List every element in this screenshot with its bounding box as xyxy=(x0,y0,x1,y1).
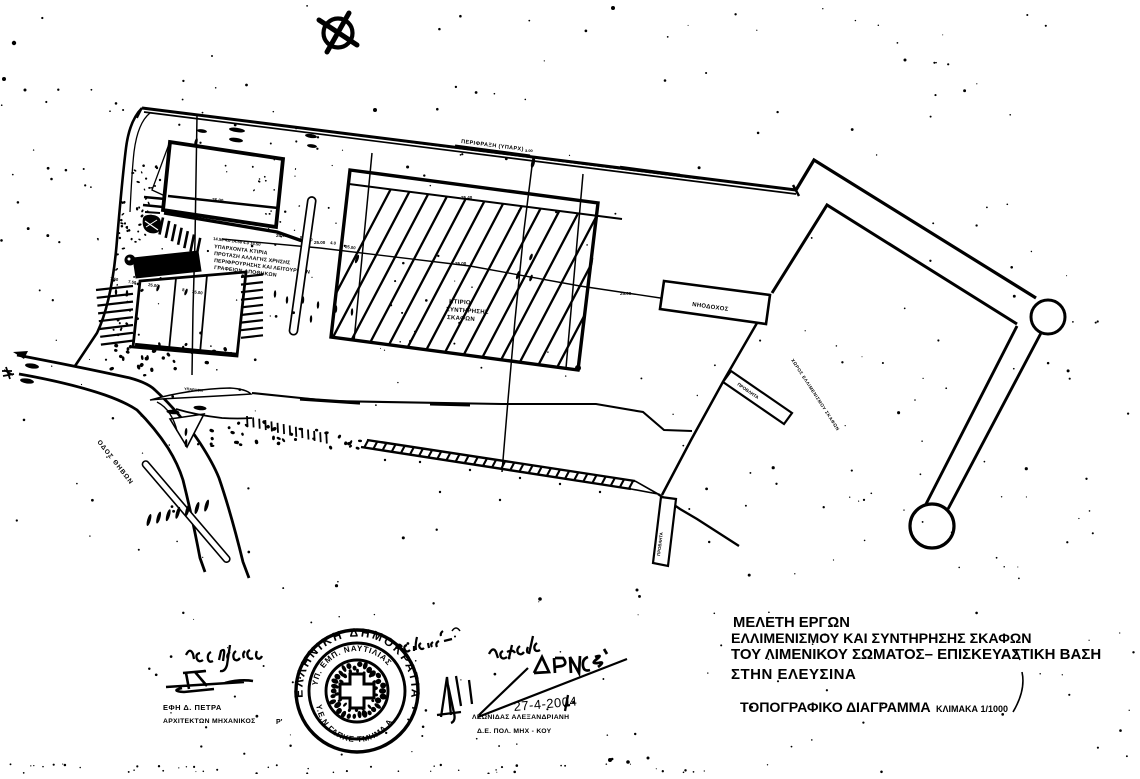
svg-text:ΣΤΗΝ ΕΛΕΥΣΙΝΑ: ΣΤΗΝ ΕΛΕΥΣΙΝΑ xyxy=(731,666,856,683)
svg-text:ΤΟΥ ΛΙΜΕΝΙΚΟΥ ΣΩΜΑΤΟΣ– ΕΠΙΣΚΕΥ: ΤΟΥ ΛΙΜΕΝΙΚΟΥ ΣΩΜΑΤΟΣ– ΕΠΙΣΚΕΥΑΣΤΙΚΗ ΒΑΣ… xyxy=(731,646,1101,663)
svg-text:ΕΛΛΙΜΕΝΙΣΜΟΥ ΚΑΙ ΣΥΝΤΗΡΗΣΗΣ ΣΚ: ΕΛΛΙΜΕΝΙΣΜΟΥ ΚΑΙ ΣΥΝΤΗΡΗΣΗΣ ΣΚΑΦΩΝ xyxy=(731,631,1032,647)
svg-text:Δ.Ε. ΠΟΛ. ΜΗΧ - ΚΟΥ: Δ.Ε. ΠΟΛ. ΜΗΧ - ΚΟΥ xyxy=(477,728,552,735)
svg-text:Ρ′: Ρ′ xyxy=(276,719,283,726)
svg-text:ΕΦΗ Δ. ΠΕΤΡΑ: ΕΦΗ Δ. ΠΕΤΡΑ xyxy=(163,703,222,712)
svg-text:ΤΟΠΟΓΡΑΦΙΚΟ ΔΙΑΓΡΑΜΜΑ: ΤΟΠΟΓΡΑΦΙΚΟ ΔΙΑΓΡΑΜΜΑ xyxy=(740,700,931,716)
svg-text:25.00: 25.00 xyxy=(620,291,632,296)
svg-text:3.00: 3.00 xyxy=(525,148,534,153)
svg-text:25.00: 25.00 xyxy=(455,261,467,266)
svg-text:25.00: 25.00 xyxy=(314,240,326,245)
svg-text:ΛΕΩΝΙΔΑΣ ΑΛΕΞΑΝΔΡΙΑΝΗ: ΛΕΩΝΙΔΑΣ ΑΛΕΞΑΝΔΡΙΑΝΗ xyxy=(472,714,569,721)
svg-text:ΑΡΧΙΤΕΚΤΩΝ ΜΗΧΑΝΙΚΟΣ: ΑΡΧΙΤΕΚΤΩΝ ΜΗΧΑΝΙΚΟΣ xyxy=(163,718,256,725)
svg-text:ΜΕΛΕΤΗ ΕΡΓΩΝ: ΜΕΛΕΤΗ ΕΡΓΩΝ xyxy=(733,615,850,631)
svg-text:ΚΛΙΜΑΚΑ 1/1000: ΚΛΙΜΑΚΑ 1/1000 xyxy=(936,704,1008,714)
